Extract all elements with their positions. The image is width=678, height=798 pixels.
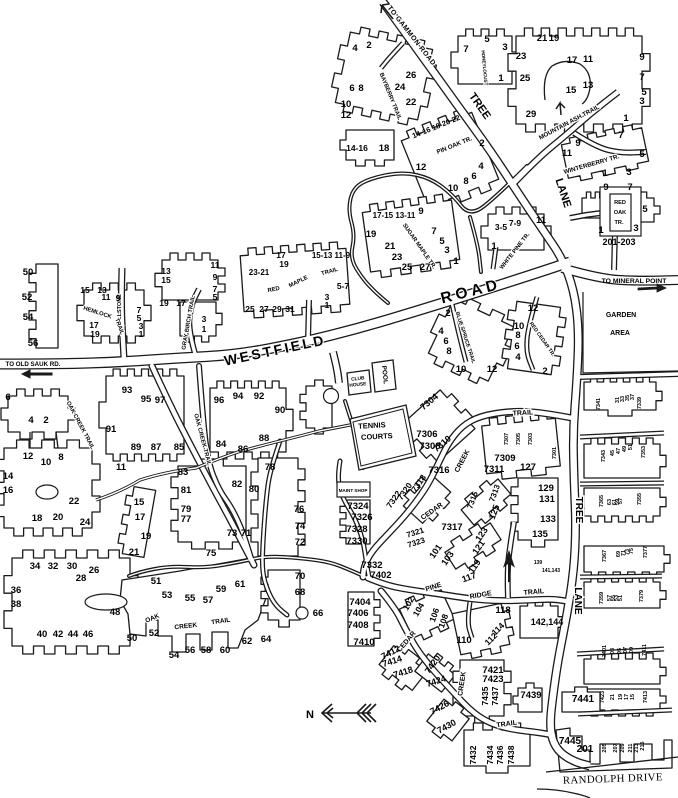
svg-text:91: 91 — [106, 424, 117, 435]
svg-text:15-13 11-9: 15-13 11-9 — [312, 251, 351, 260]
svg-text:27: 27 — [420, 262, 431, 273]
svg-text:7439: 7439 — [520, 690, 541, 701]
svg-text:1: 1 — [498, 73, 504, 84]
svg-text:10: 10 — [341, 99, 352, 110]
svg-text:6: 6 — [5, 392, 10, 403]
svg-text:7301: 7301 — [552, 447, 558, 459]
svg-text:118: 118 — [495, 605, 510, 616]
svg-text:7423: 7423 — [600, 691, 606, 703]
svg-text:25: 25 — [402, 262, 413, 273]
svg-text:12: 12 — [23, 451, 34, 462]
svg-text:64: 64 — [261, 634, 272, 645]
svg-text:76: 76 — [294, 504, 305, 515]
svg-text:7: 7 — [463, 44, 468, 55]
svg-text:82: 82 — [232, 479, 243, 490]
svg-text:2: 2 — [542, 366, 547, 377]
svg-text:127: 127 — [520, 462, 536, 473]
svg-text:12: 12 — [416, 162, 427, 173]
svg-text:7432: 7432 — [468, 745, 478, 764]
svg-text:9: 9 — [575, 138, 580, 149]
svg-text:7330: 7330 — [346, 536, 367, 547]
svg-text:37: 37 — [630, 394, 636, 400]
svg-text:18: 18 — [32, 513, 43, 524]
svg-text:26: 26 — [406, 70, 417, 81]
svg-text:73: 73 — [227, 528, 238, 539]
svg-text:23-21: 23-21 — [249, 268, 270, 277]
svg-text:66: 66 — [313, 608, 324, 619]
svg-text:9: 9 — [639, 52, 644, 63]
svg-text:OAK: OAK — [614, 210, 626, 216]
svg-text:15: 15 — [566, 85, 577, 96]
svg-text:7367: 7367 — [602, 550, 608, 562]
svg-text:3-5: 3-5 — [495, 222, 508, 232]
svg-text:44: 44 — [68, 629, 79, 640]
svg-text:17: 17 — [567, 55, 578, 66]
svg-text:12: 12 — [528, 303, 539, 314]
svg-text:139: 139 — [534, 560, 543, 566]
svg-text:74: 74 — [295, 521, 306, 532]
svg-text:TENNIS: TENNIS — [358, 420, 386, 430]
svg-text:7311: 7311 — [484, 464, 505, 475]
svg-text:18: 18 — [379, 143, 390, 154]
svg-text:7413: 7413 — [643, 691, 649, 703]
svg-text:21: 21 — [129, 547, 140, 558]
svg-text:2: 2 — [366, 40, 371, 51]
svg-text:11: 11 — [211, 260, 220, 270]
svg-text:5-7: 5-7 — [337, 281, 350, 291]
svg-text:9: 9 — [603, 182, 608, 193]
svg-text:4: 4 — [515, 352, 521, 363]
svg-text:4: 4 — [352, 43, 358, 54]
svg-text:TO MINERAL POINT: TO MINERAL POINT — [602, 278, 668, 285]
svg-text:7324: 7324 — [347, 501, 369, 512]
svg-text:27: 27 — [259, 304, 269, 314]
svg-text:1: 1 — [139, 329, 144, 339]
svg-text:70: 70 — [295, 571, 306, 582]
svg-text:57: 57 — [618, 498, 624, 504]
svg-text:56: 56 — [28, 338, 39, 349]
svg-text:12: 12 — [487, 364, 498, 375]
svg-text:6: 6 — [471, 171, 476, 182]
svg-text:5: 5 — [213, 292, 218, 302]
svg-text:7343: 7343 — [601, 450, 607, 462]
svg-text:7406: 7406 — [347, 608, 368, 619]
svg-text:20: 20 — [53, 512, 64, 523]
svg-text:142,144: 142,144 — [531, 617, 564, 627]
svg-text:7341: 7341 — [596, 398, 602, 410]
svg-text:77: 77 — [181, 514, 192, 525]
svg-text:7306: 7306 — [416, 429, 437, 440]
svg-text:56: 56 — [185, 645, 196, 656]
svg-text:84: 84 — [216, 439, 227, 450]
svg-text:24: 24 — [395, 82, 406, 93]
svg-text:96: 96 — [214, 395, 225, 406]
svg-text:17-15 13-11: 17-15 13-11 — [373, 211, 416, 220]
svg-text:8: 8 — [515, 330, 520, 341]
svg-text:14-16: 14-16 — [346, 143, 368, 153]
svg-text:1: 1 — [325, 300, 330, 310]
svg-text:72: 72 — [295, 537, 306, 548]
svg-text:7435: 7435 — [480, 686, 490, 705]
svg-text:89: 89 — [131, 442, 142, 453]
svg-text:8: 8 — [463, 176, 468, 187]
svg-text:88: 88 — [259, 433, 270, 444]
svg-text:71: 71 — [241, 528, 252, 539]
svg-text:1: 1 — [491, 241, 497, 252]
svg-text:87: 87 — [151, 442, 162, 453]
svg-text:7434: 7434 — [485, 745, 495, 764]
svg-text:51: 51 — [618, 595, 624, 601]
svg-text:7305: 7305 — [516, 433, 522, 445]
svg-text:78: 78 — [265, 462, 276, 473]
svg-text:19: 19 — [279, 259, 289, 269]
svg-text:59: 59 — [216, 584, 227, 595]
svg-text:7303: 7303 — [528, 433, 534, 445]
svg-text:10: 10 — [448, 183, 459, 194]
svg-text:5: 5 — [484, 34, 490, 45]
svg-text:7423: 7423 — [482, 674, 503, 685]
svg-text:29: 29 — [526, 109, 537, 120]
svg-text:19: 19 — [159, 298, 169, 308]
svg-text:60: 60 — [220, 645, 231, 656]
svg-text:23: 23 — [392, 252, 403, 263]
svg-text:51: 51 — [628, 444, 634, 450]
svg-text:2: 2 — [479, 138, 484, 149]
svg-text:11: 11 — [562, 148, 573, 159]
svg-text:201-203: 201-203 — [602, 237, 635, 247]
svg-text:26: 26 — [89, 565, 100, 576]
svg-text:22: 22 — [406, 97, 417, 108]
svg-text:25: 25 — [245, 304, 255, 314]
svg-text:92: 92 — [254, 391, 265, 402]
svg-text:215: 215 — [640, 741, 646, 750]
svg-text:8: 8 — [58, 452, 63, 463]
svg-text:25: 25 — [520, 73, 531, 84]
svg-text:81: 81 — [181, 485, 192, 496]
svg-text:28: 28 — [76, 573, 87, 584]
svg-text:2: 2 — [43, 415, 48, 426]
svg-text:9: 9 — [213, 272, 218, 282]
svg-text:17: 17 — [176, 298, 186, 308]
svg-text:58: 58 — [201, 645, 212, 656]
svg-text:93: 93 — [122, 385, 133, 396]
svg-text:22: 22 — [69, 496, 80, 507]
svg-text:10: 10 — [41, 457, 52, 468]
svg-text:21: 21 — [385, 241, 396, 252]
svg-text:13: 13 — [583, 80, 594, 91]
svg-text:3: 3 — [444, 245, 449, 256]
svg-text:54: 54 — [23, 312, 34, 323]
svg-text:6: 6 — [349, 83, 354, 94]
svg-text:7402: 7402 — [370, 570, 391, 581]
svg-text:7441: 7441 — [572, 694, 595, 705]
svg-text:51: 51 — [151, 576, 162, 587]
svg-text:N: N — [306, 709, 314, 721]
svg-text:15: 15 — [134, 497, 145, 508]
svg-text:50: 50 — [23, 267, 34, 278]
svg-text:133: 133 — [540, 514, 556, 525]
svg-text:7317: 7317 — [441, 522, 462, 533]
svg-text:3: 3 — [639, 96, 644, 107]
svg-text:83: 83 — [178, 467, 189, 478]
svg-text:131: 131 — [539, 494, 556, 505]
svg-text:8: 8 — [446, 346, 451, 357]
svg-text:7339: 7339 — [637, 397, 643, 409]
svg-text:7: 7 — [618, 130, 623, 141]
svg-text:97: 97 — [155, 395, 166, 406]
svg-text:TREE: TREE — [573, 497, 584, 524]
svg-text:7436: 7436 — [495, 745, 505, 764]
svg-text:48: 48 — [110, 607, 121, 618]
svg-text:7316: 7316 — [428, 465, 449, 476]
svg-text:19: 19 — [141, 531, 152, 542]
svg-text:55: 55 — [185, 593, 196, 604]
svg-text:MAINT SHOP: MAINT SHOP — [339, 488, 368, 493]
svg-text:80: 80 — [249, 484, 260, 495]
svg-text:4: 4 — [28, 415, 34, 426]
svg-text:1: 1 — [602, 168, 608, 179]
svg-text:3: 3 — [633, 223, 638, 234]
svg-text:7326: 7326 — [351, 512, 372, 523]
svg-text:61: 61 — [235, 579, 246, 590]
svg-text:23: 23 — [516, 51, 527, 62]
svg-text:09: 09 — [629, 647, 635, 653]
svg-text:75: 75 — [206, 548, 217, 559]
svg-text:141,143: 141,143 — [542, 568, 560, 574]
svg-text:AREA: AREA — [610, 330, 630, 337]
svg-text:75: 75 — [629, 548, 635, 554]
svg-text:14: 14 — [3, 471, 14, 482]
svg-text:7404: 7404 — [349, 597, 371, 608]
svg-text:86: 86 — [238, 444, 249, 455]
svg-text:209: 209 — [620, 743, 626, 752]
svg-text:1: 1 — [453, 256, 459, 267]
svg-text:29: 29 — [272, 304, 282, 314]
svg-text:42: 42 — [53, 629, 64, 640]
svg-text:7355: 7355 — [637, 493, 643, 505]
svg-text:11: 11 — [536, 215, 547, 226]
svg-text:5: 5 — [639, 149, 645, 160]
svg-text:201: 201 — [577, 744, 594, 755]
svg-text:207: 207 — [613, 743, 619, 752]
svg-text:TR.: TR. — [614, 220, 623, 226]
svg-text:8: 8 — [358, 83, 363, 94]
svg-text:LANE: LANE — [572, 587, 583, 615]
svg-text:32: 32 — [48, 561, 59, 572]
svg-text:7353: 7353 — [641, 446, 647, 458]
svg-text:7437: 7437 — [490, 686, 500, 705]
svg-text:135: 135 — [532, 529, 549, 540]
svg-text:7401: 7401 — [602, 645, 608, 657]
svg-text:3: 3 — [202, 314, 207, 324]
svg-text:03: 03 — [610, 648, 616, 654]
svg-text:16: 16 — [3, 485, 14, 496]
svg-text:95: 95 — [141, 394, 152, 405]
svg-text:7377: 7377 — [643, 546, 649, 558]
svg-text:1: 1 — [598, 225, 604, 236]
svg-text:53: 53 — [162, 590, 173, 601]
svg-text:11: 11 — [102, 292, 111, 302]
svg-text:205: 205 — [602, 743, 608, 752]
svg-text:11: 11 — [583, 54, 594, 65]
svg-text:TO OLD SAUK RD.: TO OLD SAUK RD. — [6, 361, 61, 368]
svg-text:1: 1 — [623, 113, 629, 124]
svg-text:31: 31 — [285, 304, 295, 314]
svg-text:19: 19 — [366, 229, 377, 240]
svg-text:7365: 7365 — [599, 495, 605, 507]
svg-text:54: 54 — [169, 650, 180, 661]
svg-text:50: 50 — [127, 633, 138, 644]
svg-text:7408: 7408 — [347, 620, 368, 631]
svg-text:15: 15 — [161, 275, 171, 285]
svg-text:52: 52 — [22, 292, 33, 303]
svg-text:7307: 7307 — [504, 433, 510, 445]
svg-text:90: 90 — [275, 405, 286, 416]
svg-text:19: 19 — [90, 329, 100, 339]
svg-text:12: 12 — [341, 110, 352, 121]
svg-text:7359: 7359 — [599, 592, 605, 604]
svg-text:129: 129 — [538, 483, 554, 494]
svg-text:21: 21 — [610, 694, 616, 700]
svg-text:10: 10 — [456, 364, 467, 375]
svg-text:1: 1 — [202, 324, 207, 334]
svg-text:4: 4 — [478, 161, 484, 172]
svg-text:9: 9 — [418, 206, 423, 217]
svg-text:7309: 7309 — [494, 453, 515, 464]
svg-text:7328: 7328 — [346, 524, 367, 535]
svg-text:68: 68 — [295, 587, 306, 598]
svg-text:38: 38 — [11, 599, 22, 610]
svg-text:6: 6 — [514, 341, 519, 352]
svg-text:46: 46 — [83, 629, 94, 640]
svg-text:7-9: 7-9 — [509, 218, 522, 228]
svg-text:15: 15 — [630, 694, 636, 700]
svg-text:17: 17 — [135, 512, 146, 523]
svg-text:85: 85 — [174, 442, 185, 453]
svg-text:11: 11 — [116, 462, 127, 473]
svg-text:7: 7 — [431, 226, 436, 237]
svg-text:21: 21 — [537, 33, 548, 44]
svg-text:TRAIL: TRAIL — [512, 409, 534, 417]
svg-text:7410: 7410 — [353, 637, 374, 648]
svg-text:3: 3 — [626, 167, 631, 178]
svg-text:7379: 7379 — [639, 590, 645, 602]
svg-text:34: 34 — [30, 561, 41, 572]
svg-text:7: 7 — [639, 72, 644, 83]
svg-text:2: 2 — [445, 308, 450, 319]
svg-text:7411: 7411 — [642, 644, 648, 656]
svg-text:19: 19 — [549, 33, 560, 44]
svg-text:110: 110 — [456, 635, 471, 646]
svg-text:RED: RED — [614, 200, 626, 206]
svg-text:62: 62 — [242, 636, 253, 647]
svg-text:52: 52 — [149, 628, 160, 639]
svg-text:7: 7 — [627, 182, 632, 193]
svg-text:15: 15 — [80, 285, 90, 295]
svg-text:40: 40 — [37, 629, 48, 640]
svg-text:5: 5 — [642, 204, 648, 215]
svg-text:57: 57 — [203, 595, 214, 606]
svg-text:9: 9 — [116, 293, 121, 303]
svg-text:7438: 7438 — [506, 745, 516, 764]
svg-text:24: 24 — [80, 517, 91, 528]
svg-text:36: 36 — [11, 585, 22, 596]
svg-text:3: 3 — [502, 42, 507, 53]
svg-text:94: 94 — [233, 391, 244, 402]
svg-text:30: 30 — [67, 561, 78, 572]
svg-text:GARDEN: GARDEN — [606, 312, 636, 319]
svg-text:COURTS: COURTS — [361, 431, 393, 442]
